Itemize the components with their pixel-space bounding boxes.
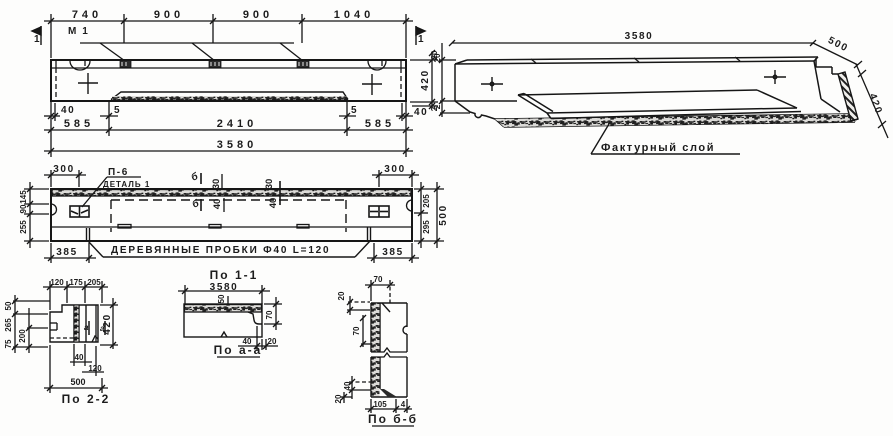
svg-text:50: 50 — [217, 294, 226, 303]
svg-text:500: 500 — [438, 204, 449, 226]
svg-text:300: 300 — [384, 164, 406, 175]
svg-text:585: 585 — [64, 118, 94, 130]
svg-text:175: 175 — [69, 278, 83, 287]
svg-text:1040: 1040 — [334, 9, 374, 21]
svg-text:ДЕРЕВЯННЫЕ ПРОБКИ Ф40 L=120: ДЕРЕВЯННЫЕ ПРОБКИ Ф40 L=120 — [111, 245, 330, 256]
svg-text:30: 30 — [211, 179, 222, 190]
svg-text:90: 90 — [19, 204, 28, 213]
svg-text:420: 420 — [102, 313, 113, 335]
svg-text:20: 20 — [268, 337, 277, 346]
svg-text:385: 385 — [382, 247, 404, 258]
svg-text:70: 70 — [265, 310, 274, 319]
svg-text:420: 420 — [420, 69, 431, 91]
svg-text:20: 20 — [430, 50, 439, 59]
svg-text:1: 1 — [34, 34, 41, 45]
svg-text:900: 900 — [154, 9, 184, 21]
svg-text:70: 70 — [352, 326, 361, 335]
svg-text:255: 255 — [19, 220, 28, 234]
svg-text:20: 20 — [337, 291, 346, 300]
svg-text:П-6: П-6 — [108, 167, 129, 178]
svg-text:По 2-2: По 2-2 — [62, 392, 111, 406]
svg-text:40: 40 — [268, 198, 279, 209]
svg-text:М 1: М 1 — [68, 26, 89, 37]
svg-text:По 1-1: По 1-1 — [210, 268, 259, 282]
svg-text:205: 205 — [87, 278, 101, 287]
svg-text:205: 205 — [422, 194, 431, 208]
svg-text:5: 5 — [351, 105, 358, 116]
svg-text:б: б — [189, 170, 201, 184]
svg-text:265: 265 — [4, 318, 13, 332]
svg-text:300: 300 — [53, 164, 75, 175]
svg-text:По а-а: По а-а — [214, 343, 263, 357]
svg-text:Фактурный слой: Фактурный слой — [601, 142, 715, 154]
svg-text:40: 40 — [61, 105, 75, 116]
svg-text:145: 145 — [19, 190, 28, 204]
svg-text:500: 500 — [70, 377, 85, 387]
svg-text:40: 40 — [414, 107, 428, 118]
svg-text:3580: 3580 — [217, 139, 257, 151]
svg-text:2: 2 — [430, 106, 439, 111]
svg-text:50: 50 — [4, 301, 13, 310]
svg-text:740: 740 — [72, 9, 102, 21]
svg-text:5: 5 — [114, 105, 121, 116]
svg-text:70: 70 — [374, 275, 383, 284]
svg-text:40: 40 — [212, 199, 223, 210]
svg-text:900: 900 — [243, 9, 273, 21]
svg-text:40: 40 — [343, 381, 352, 390]
svg-text:30: 30 — [264, 179, 275, 190]
svg-text:200: 200 — [18, 329, 27, 343]
svg-text:385: 385 — [56, 247, 78, 258]
svg-text:295: 295 — [422, 220, 431, 234]
svg-text:По б-б: По б-б — [368, 412, 418, 426]
svg-text:3580: 3580 — [210, 282, 239, 293]
svg-text:4: 4 — [401, 400, 406, 409]
svg-text:ДЕТАЛЬ 1: ДЕТАЛЬ 1 — [103, 180, 150, 189]
svg-text:1: 1 — [418, 34, 425, 45]
svg-text:585: 585 — [365, 118, 395, 130]
svg-text:20: 20 — [334, 394, 343, 403]
svg-text:105: 105 — [373, 400, 387, 409]
svg-text:2410: 2410 — [217, 118, 257, 130]
svg-text:120: 120 — [88, 364, 102, 373]
svg-text:75: 75 — [4, 339, 13, 348]
svg-text:420: 420 — [867, 92, 885, 116]
svg-text:120: 120 — [50, 278, 64, 287]
svg-text:а: а — [84, 323, 89, 332]
svg-text:40: 40 — [75, 353, 84, 362]
svg-text:3580: 3580 — [625, 31, 654, 42]
